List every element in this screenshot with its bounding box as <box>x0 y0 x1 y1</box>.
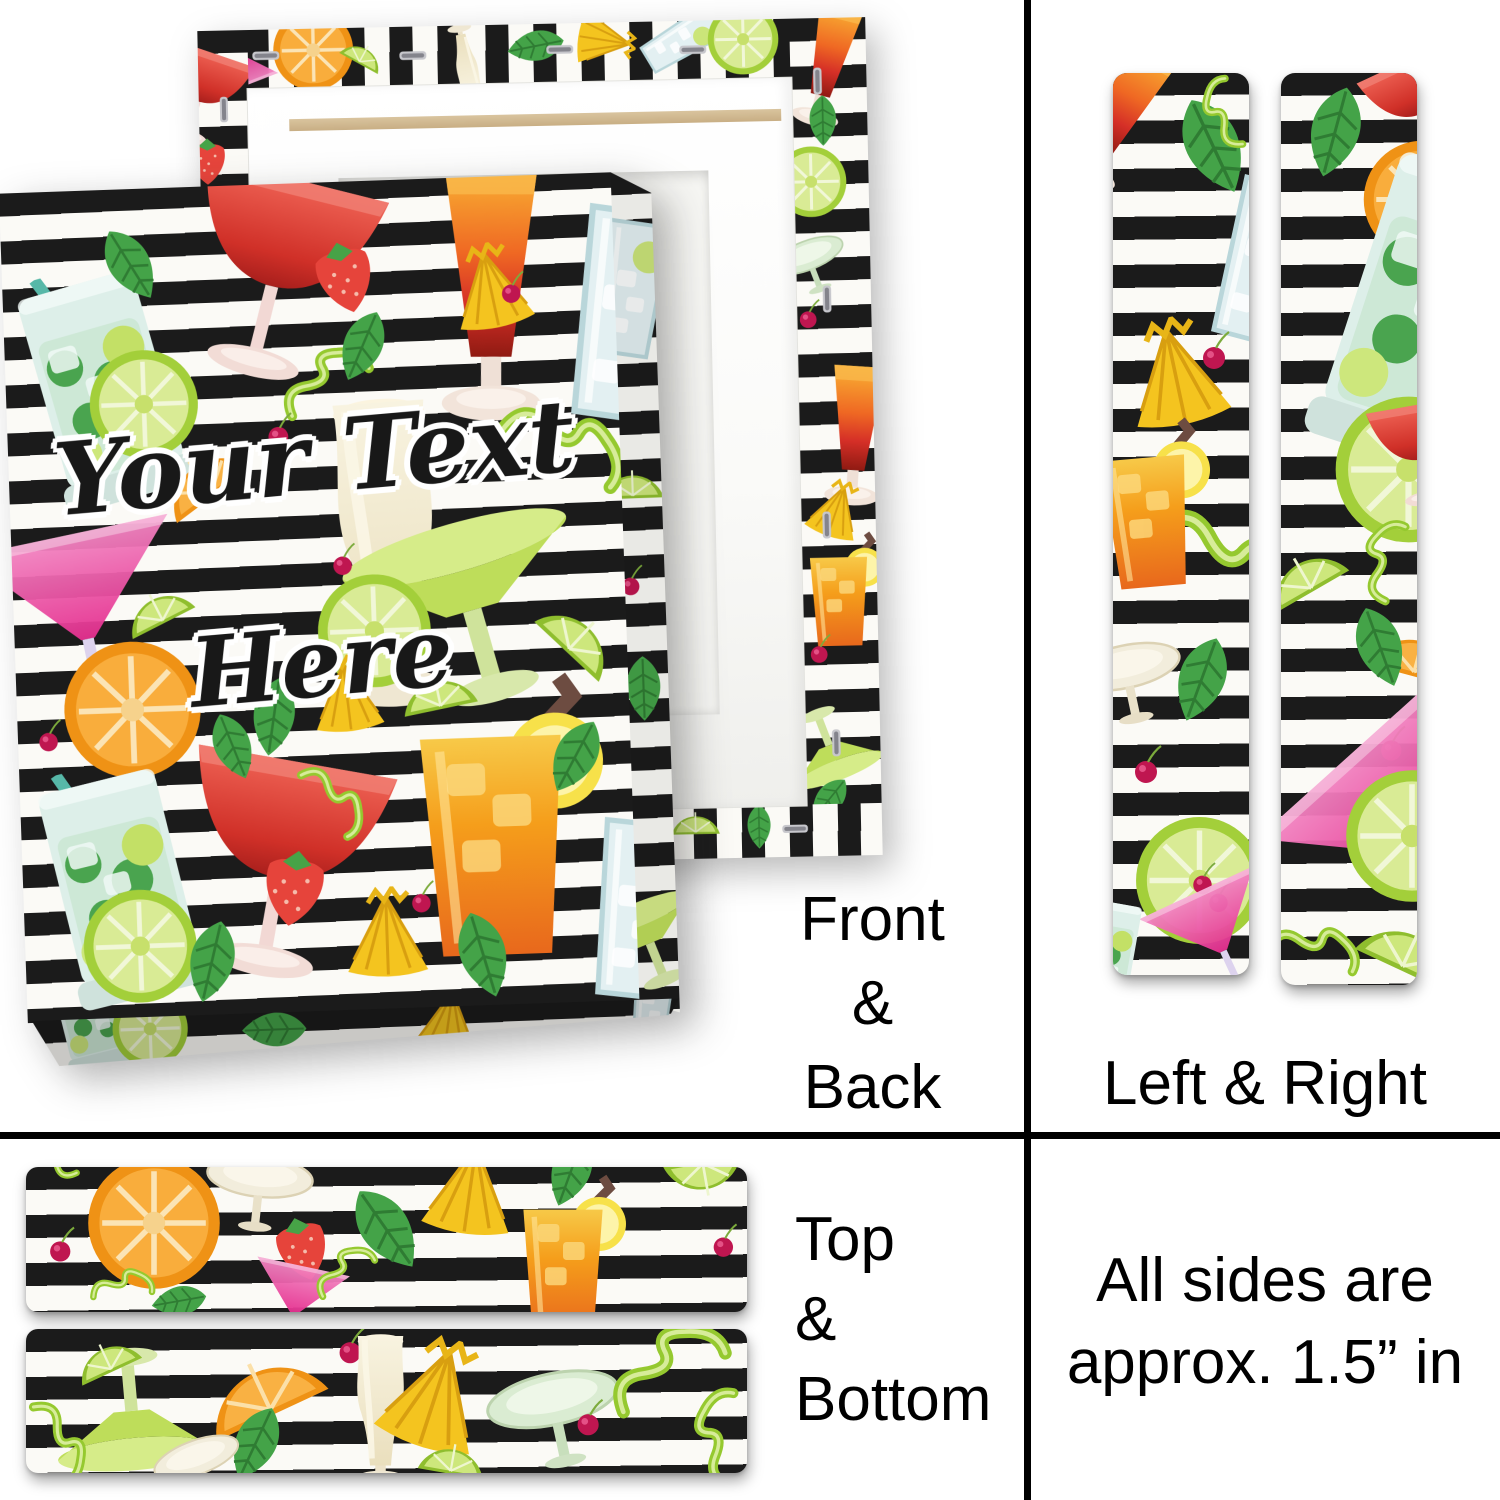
front-back-label-line1: Front <box>765 878 980 962</box>
canvas-front-face: Your Text Here <box>0 172 640 1023</box>
cherry-icon <box>567 1394 615 1442</box>
cherry-icon <box>257 407 304 454</box>
sunrise-icon <box>789 17 883 156</box>
orange-wedge-icon <box>129 406 276 553</box>
product-preview-sheet: Your Text Here Front & Back Left & Right… <box>0 0 1500 1500</box>
lime-wedge-icon <box>611 450 669 522</box>
top-bottom-label: Top & Bottom <box>795 1200 991 1440</box>
mojito-icon <box>32 998 169 1067</box>
lime-slice-icon <box>1331 392 1417 547</box>
mint-icon <box>226 669 322 765</box>
coupe-top-icon <box>1113 444 1167 574</box>
orange-slice-icon <box>1360 137 1417 262</box>
peel-icon <box>78 1248 170 1312</box>
peel-icon <box>1181 73 1249 162</box>
strawberry-icon <box>293 222 396 325</box>
daiquiri-icon <box>115 172 430 438</box>
mint-icon <box>1281 73 1396 193</box>
margarita-icon <box>611 871 681 1018</box>
pineapple-icon <box>1113 305 1247 447</box>
pineapple-icon <box>356 1329 514 1473</box>
cherry-icon <box>1124 740 1174 790</box>
canvas-back-wrap-right <box>789 17 883 856</box>
cherry-icon <box>791 294 830 333</box>
pineapple-icon <box>299 650 394 745</box>
sunrise-icon <box>789 356 883 526</box>
strawberry-icon <box>197 131 235 187</box>
front-back-label: Front & Back <box>765 878 980 1130</box>
front-back-label-line2: & <box>765 962 980 1046</box>
cherry-icon <box>402 876 445 919</box>
lime-wedge-icon <box>653 1167 747 1228</box>
staple-icon <box>538 28 581 71</box>
pina-icon <box>418 17 512 91</box>
coupe-top-icon <box>1113 603 1202 751</box>
sunrise-icon <box>346 172 636 450</box>
personalization-text-line2: Here <box>185 595 457 731</box>
mint-icon <box>611 652 680 724</box>
margarita-icon <box>789 664 883 806</box>
peel-icon <box>1336 504 1417 620</box>
pineapple-icon <box>403 998 493 1067</box>
mint-icon <box>1140 73 1249 219</box>
pina-icon <box>202 376 576 750</box>
lime-slice-icon <box>78 884 202 1008</box>
peel-icon <box>278 758 374 854</box>
martini-icon <box>197 17 284 91</box>
coupe-top-icon <box>134 1401 262 1473</box>
mint-icon <box>310 293 415 398</box>
grid-divider-horizontal <box>0 1132 1500 1139</box>
mint-icon <box>199 1387 312 1473</box>
personalization-text-line1: Your Text <box>49 376 579 539</box>
rum-icon <box>789 528 883 661</box>
mojito-icon <box>0 234 266 556</box>
margarita-icon <box>33 1329 228 1473</box>
staple-icon <box>805 277 848 320</box>
cherry-icon <box>323 538 366 581</box>
staple-icon <box>209 349 250 390</box>
cherry-icon <box>704 1219 747 1263</box>
lime-wedge-icon <box>57 1329 157 1409</box>
mint-icon <box>1323 589 1417 704</box>
mint-icon <box>500 17 573 82</box>
staple-icon <box>792 23 835 66</box>
lime-wedge-icon <box>409 1417 496 1473</box>
pineapple-icon <box>434 234 547 347</box>
lime-slice-icon <box>109 998 192 1067</box>
daiquiri-icon <box>117 710 441 1023</box>
top-bottom-label-line2: & <box>795 1280 991 1360</box>
top-bottom-label-line1: Top <box>795 1200 991 1280</box>
staple-icon <box>805 504 848 547</box>
mojito-icon <box>0 735 280 1023</box>
mint-icon <box>238 998 310 1065</box>
staple-icon <box>204 89 245 130</box>
staple-icon <box>815 721 858 764</box>
rum-icon <box>1113 408 1249 614</box>
pineapple-icon <box>335 884 438 987</box>
cherry-icon <box>491 266 534 309</box>
sunrise-icon <box>1113 73 1231 237</box>
canvas-top-side-image <box>26 1167 747 1312</box>
strawberry-icon <box>244 834 346 936</box>
lime-slice-icon <box>1132 813 1249 948</box>
staple-icon <box>244 34 287 77</box>
canvas-back-recess <box>338 170 719 722</box>
size-note-line1: All sides are <box>1035 1240 1495 1322</box>
peel-icon <box>271 330 391 450</box>
mint-icon <box>424 896 543 1015</box>
rum-icon <box>328 661 640 992</box>
coupe-green-icon <box>789 207 865 317</box>
clear-glass-icon <box>614 17 744 91</box>
mint-icon <box>518 698 633 813</box>
grid-divider-vertical <box>1024 0 1031 1500</box>
cherry-icon <box>1192 326 1242 376</box>
cherry-icon <box>29 714 72 757</box>
canvas-front-bottom-edge <box>32 998 681 1067</box>
lime-wedge-icon <box>104 556 212 664</box>
size-note: All sides are approx. 1.5” in <box>1035 1240 1495 1404</box>
canvas-back-wrap-bottom <box>214 803 883 869</box>
pineapple-icon <box>795 470 877 552</box>
lime-slice-icon <box>84 344 203 463</box>
lime-wedge-icon <box>1281 512 1369 642</box>
lime-wedge-icon <box>1333 875 1417 985</box>
mint-icon <box>316 1167 455 1298</box>
daiquiri-icon <box>1334 73 1417 197</box>
martini-icon <box>1281 645 1417 985</box>
margarita-icon <box>313 469 639 803</box>
peel-icon <box>1128 490 1249 663</box>
orange-slice-icon <box>57 635 207 785</box>
mint-icon <box>791 761 868 838</box>
lime-wedge-icon <box>508 568 639 709</box>
lime-wedge-icon <box>668 803 724 852</box>
staple-icon <box>672 29 715 72</box>
peel-icon <box>26 1386 109 1473</box>
canvas-bottom-side-image <box>26 1329 747 1473</box>
clear-glass-icon <box>597 998 681 1063</box>
coupe-green-icon <box>466 1329 644 1473</box>
front-back-quadrant: Your Text Here Front & Back <box>0 0 1500 1500</box>
peel-icon <box>1281 895 1377 985</box>
rum-icon <box>473 1170 653 1312</box>
mint-icon <box>144 1267 214 1312</box>
daiquiri-icon <box>197 30 265 176</box>
orange-wedge-icon <box>1350 590 1417 725</box>
pineapple-icon <box>567 17 641 77</box>
clear-glass-icon <box>1143 151 1249 384</box>
cherry-icon <box>802 629 841 668</box>
mint-icon <box>519 1167 622 1222</box>
peel-icon <box>26 1167 96 1186</box>
size-note-quadrant: All sides are approx. 1.5” in <box>0 0 1500 1500</box>
top-bottom-label-line3: Bottom <box>795 1360 991 1440</box>
canvas-front-right-edge <box>611 171 681 1018</box>
orange-wedge-icon <box>169 1329 355 1473</box>
orange-slice-icon <box>270 17 357 91</box>
mint-icon <box>71 206 188 323</box>
mint-icon <box>158 908 266 1016</box>
staple-icon <box>775 808 816 849</box>
clear-glass-icon <box>483 181 639 463</box>
staple-icon <box>628 812 669 853</box>
lime-slice-icon <box>789 143 849 220</box>
cherry-icon <box>1371 721 1417 767</box>
top-bottom-quadrant: Top & Bottom <box>0 0 1500 1500</box>
peel-icon <box>661 1366 747 1473</box>
pina-icon <box>293 1329 468 1473</box>
size-note-line2: approx. 1.5” in <box>1035 1322 1495 1404</box>
lime-wedge-icon <box>388 644 489 745</box>
orange-slice-icon <box>84 1167 224 1293</box>
lime-wedge-icon <box>329 22 397 90</box>
lime-slice-icon <box>1342 766 1417 906</box>
front-back-label-line3: Back <box>765 1046 980 1130</box>
mint-icon <box>795 93 851 149</box>
canvas-back-stretcher-frame <box>247 77 808 818</box>
martini-icon <box>233 1247 358 1312</box>
canvas-back-wood-bar <box>289 109 781 131</box>
canvas-back-view-image <box>197 17 882 869</box>
lime-slice-icon <box>197 215 242 286</box>
left-right-quadrant: Left & Right <box>0 0 1500 1500</box>
peel-icon <box>595 1329 747 1459</box>
martini-icon <box>1128 853 1249 975</box>
cherry-icon <box>329 1329 377 1370</box>
canvas-back-wrap-left <box>197 30 265 869</box>
staple-icon <box>796 60 839 103</box>
martini-icon <box>0 493 223 766</box>
mint-icon <box>1140 619 1249 741</box>
peel-icon <box>309 1237 390 1312</box>
lime-slice-icon <box>704 17 781 77</box>
mojito-icon <box>1113 884 1179 975</box>
clear-glass-icon <box>522 800 639 1023</box>
mint-icon <box>184 697 282 795</box>
coupe-top-icon <box>193 1167 325 1252</box>
peel-icon <box>475 373 639 542</box>
mint-icon <box>735 803 784 851</box>
cherry-icon <box>1184 858 1226 900</box>
canvas-left-side-image <box>1113 73 1249 975</box>
clear-glass-icon <box>611 204 681 385</box>
canvas-front-view-image: Your Text Here <box>0 171 681 1069</box>
strawberry-icon <box>255 1199 348 1292</box>
cherry-icon <box>1200 876 1242 918</box>
canvas-right-side-image <box>1281 73 1417 985</box>
daiquiri-icon <box>1345 382 1417 533</box>
cherry-icon <box>40 1222 86 1268</box>
mojito-icon <box>1281 100 1417 541</box>
lime-slice-icon <box>312 569 436 693</box>
cherry-icon <box>612 560 653 601</box>
pineapple-icon <box>408 1167 532 1252</box>
staple-icon <box>391 35 434 78</box>
canvas-back-wrap-top <box>197 17 866 91</box>
left-right-label: Left & Right <box>1035 1048 1495 1119</box>
